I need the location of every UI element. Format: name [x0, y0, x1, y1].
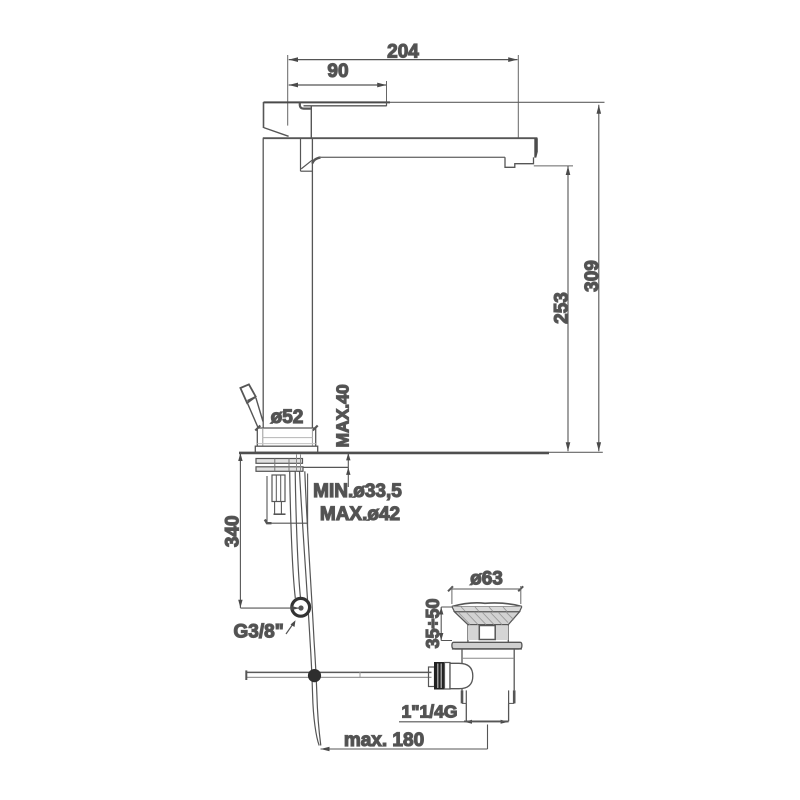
svg-text:ø52: ø52	[271, 407, 304, 428]
svg-text:ø63: ø63	[470, 569, 503, 590]
svg-text:1"1/4G: 1"1/4G	[402, 702, 458, 722]
svg-text:90: 90	[327, 61, 348, 82]
svg-text:253: 253	[551, 292, 572, 324]
svg-text:max. 180: max. 180	[344, 730, 424, 751]
svg-text:204: 204	[387, 42, 419, 63]
svg-text:G3/8": G3/8"	[234, 622, 284, 643]
svg-text:35÷50: 35÷50	[423, 599, 443, 649]
svg-text:MAX.40: MAX.40	[332, 384, 352, 447]
svg-text:340: 340	[223, 515, 244, 547]
svg-text:309: 309	[582, 260, 603, 292]
svg-text:MAX.ø42: MAX.ø42	[320, 504, 400, 525]
svg-text:MIN.ø33,5: MIN.ø33,5	[313, 481, 402, 502]
